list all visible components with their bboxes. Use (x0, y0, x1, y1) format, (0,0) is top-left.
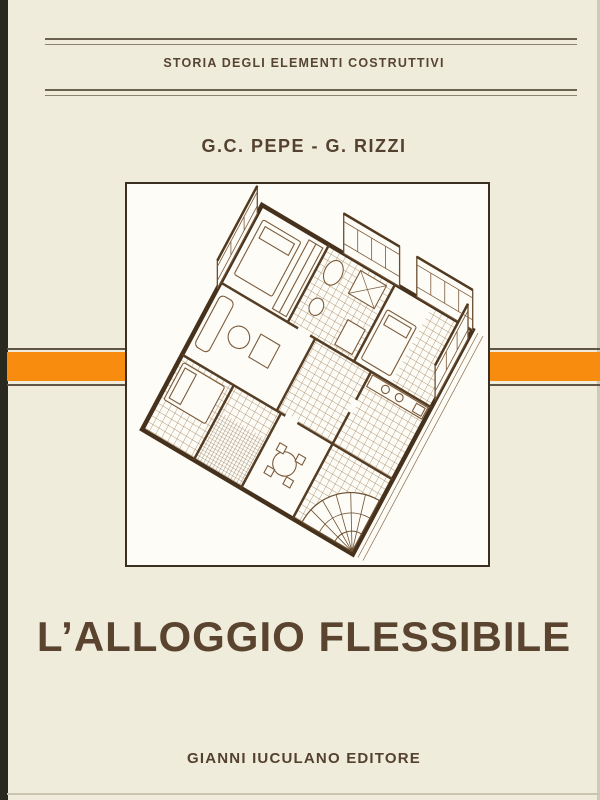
illustration-frame (125, 182, 490, 567)
scan-edge-left (0, 0, 8, 800)
book-cover: STORIA DEGLI ELEMENTI COSTRUTTIVI G.C. P… (0, 0, 600, 800)
book-title: L’ALLOGGIO FLESSIBILE (8, 613, 600, 661)
series-rule-bottom (45, 89, 577, 96)
series-rule-top (45, 38, 577, 45)
apartment-axonometric-illustration (127, 184, 488, 565)
publisher: GIANNI IUCULANO EDITORE (8, 750, 600, 767)
series-title: STORIA DEGLI ELEMENTI COSTRUTTIVI (8, 56, 600, 70)
scan-edge-bottom (7, 793, 600, 795)
authors: G.C. PEPE - G. RIZZI (8, 136, 600, 157)
